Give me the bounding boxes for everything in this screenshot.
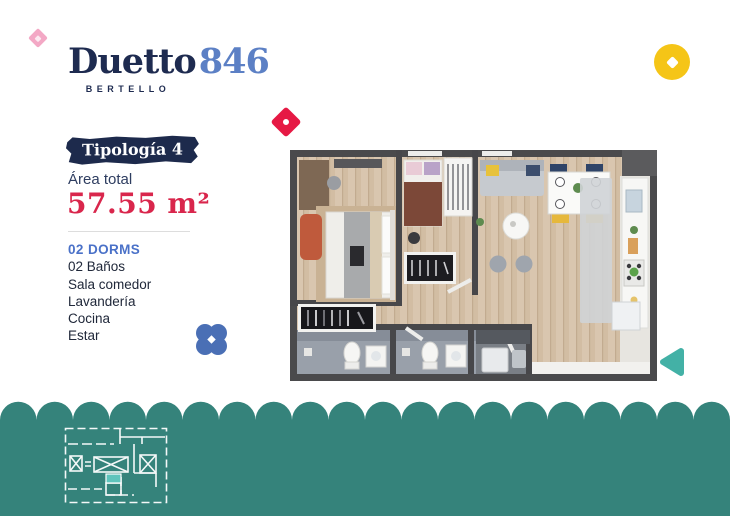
building-key-plan — [64, 427, 168, 504]
pink-diamond-center — [34, 34, 41, 41]
feature-item: 02 Baños — [68, 258, 151, 275]
feature-item: Cocina — [68, 310, 151, 327]
brochure-page: Duetto846 BERTELLO Tipología 4 Área tota… — [0, 0, 730, 516]
typology-badge: Tipología 4 — [66, 134, 199, 165]
red-diamond-center — [282, 118, 290, 126]
red-diamond-icon — [270, 106, 301, 137]
carousel-prev-arrow[interactable] — [656, 344, 688, 380]
pink-diamond-icon — [28, 28, 48, 48]
top-right-notch — [622, 150, 657, 176]
feature-list: 02 DORMS 02 Baños Sala comedor Lavanderí… — [68, 241, 151, 345]
laundry — [476, 330, 530, 372]
logo-subtitle: BERTELLO — [68, 84, 188, 94]
area-total-label: Área total — [68, 171, 132, 188]
unit-location-highlight — [106, 474, 121, 483]
closet — [298, 304, 376, 332]
blue-clover-icon — [194, 322, 229, 357]
yellow-circle-center — [666, 56, 679, 69]
logo-number: 846 — [199, 41, 269, 82]
floorplan-image — [290, 150, 657, 381]
divider-line — [68, 231, 190, 232]
yellow-circle-icon — [654, 44, 690, 80]
feature-item: Lavandería — [68, 293, 151, 310]
feature-item: Sala comedor — [68, 276, 151, 293]
area-total-value: 57.55 m² — [67, 187, 210, 220]
balcony-ledge — [530, 362, 650, 374]
logo: Duetto846 BERTELLO — [68, 44, 269, 94]
feature-item: Estar — [68, 327, 151, 344]
feature-dorms: 02 DORMS — [68, 241, 151, 258]
logo-title: Duetto — [68, 41, 196, 82]
